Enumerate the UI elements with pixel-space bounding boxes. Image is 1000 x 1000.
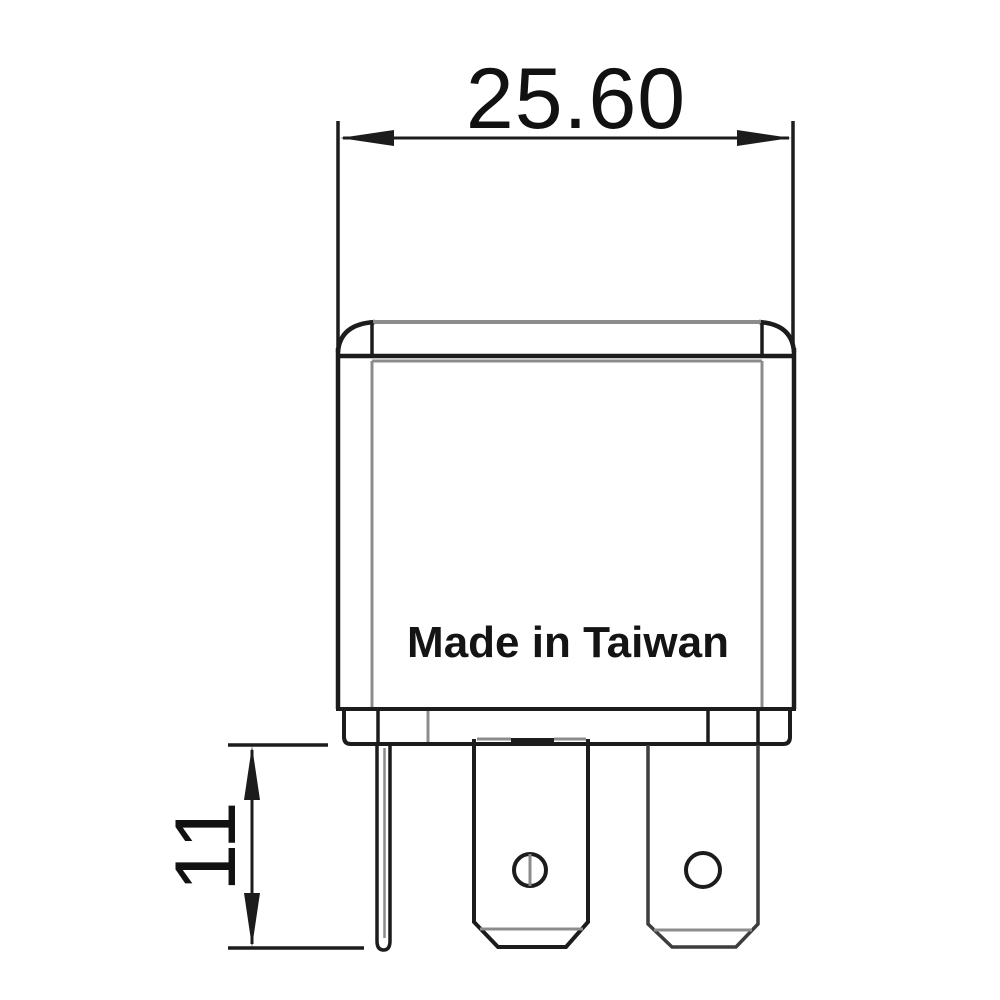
terminal-blade-2 — [648, 745, 758, 947]
blade2-hole — [686, 853, 720, 887]
width-dimension — [338, 121, 793, 348]
blade2-outline — [648, 745, 758, 947]
blade1-outline — [474, 739, 588, 947]
cap-corner-right — [759, 322, 794, 352]
made-in-label: Made in Taiwan — [318, 621, 818, 665]
drawing-canvas: 25.60 11 Made in Taiwan — [0, 0, 1000, 1000]
width-dimension-value: 25.60 — [346, 56, 806, 142]
terminal-pin-side — [377, 744, 390, 950]
relay-outline-drawing — [0, 0, 1000, 1000]
terminal-blade-1 — [474, 739, 588, 947]
relay-cap — [336, 322, 796, 361]
height-dimension-value: 11 — [163, 746, 249, 946]
cap-corner-left — [338, 322, 375, 352]
